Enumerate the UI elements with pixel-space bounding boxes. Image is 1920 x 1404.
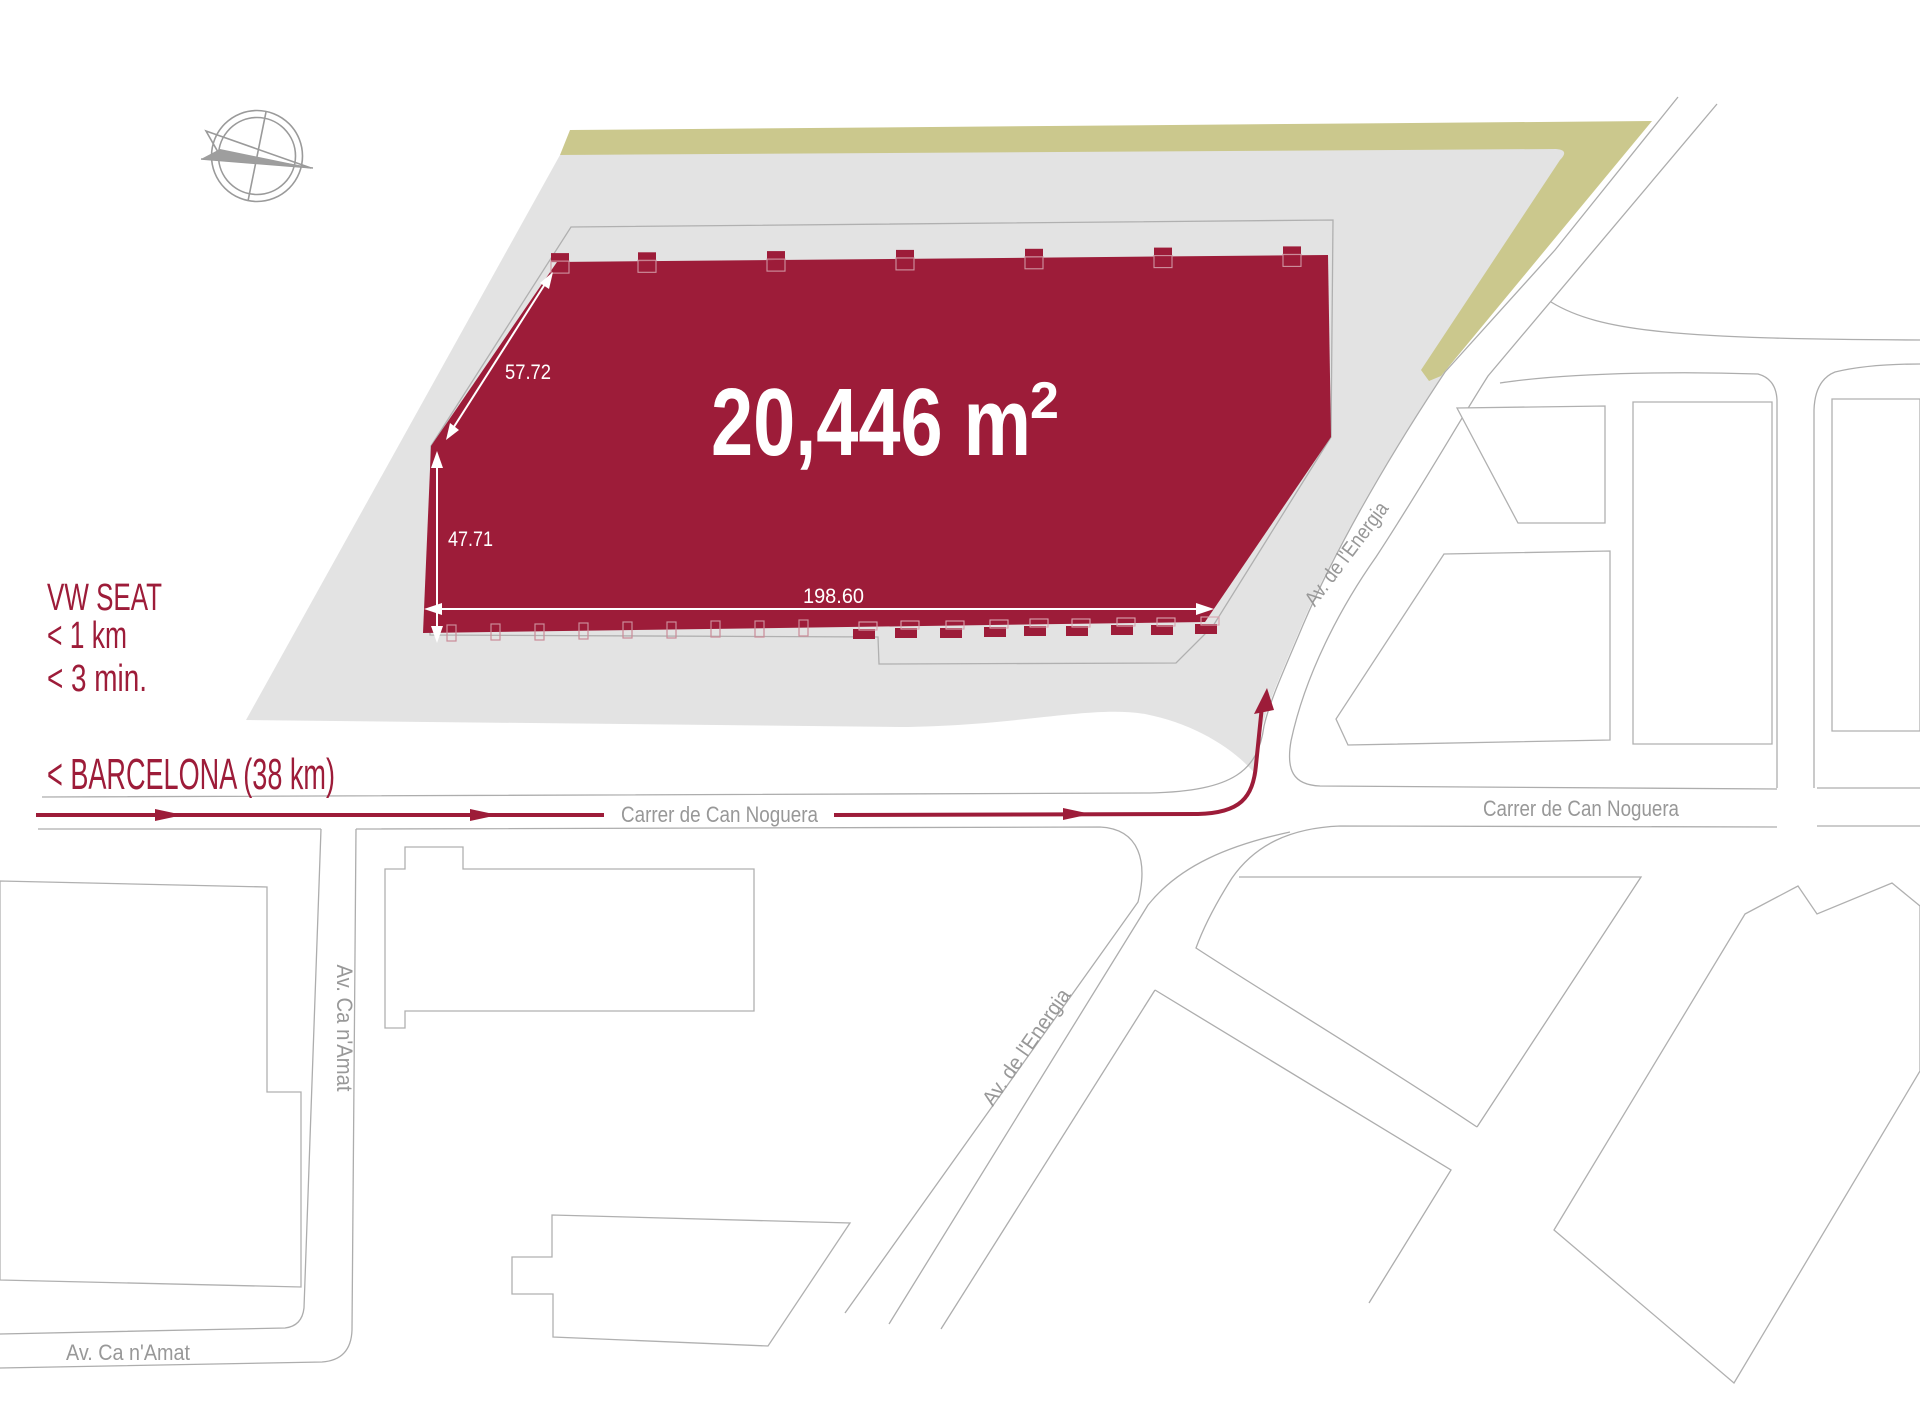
svg-text:Av. Ca n'Amat: Av. Ca n'Amat [66,1340,190,1365]
svg-text:20,446 m: 20,446 m [711,369,1031,476]
svg-text:2: 2 [1030,372,1059,430]
svg-text:Carrer de Can Noguera: Carrer de Can Noguera [1483,796,1680,821]
svg-text:57.72: 57.72 [505,361,551,384]
svg-text:VW SEAT: VW SEAT [47,577,162,619]
svg-text:47.71: 47.71 [448,528,493,551]
svg-text:Av. Ca n'Amat: Av. Ca n'Amat [332,965,357,1092]
svg-text:< 1 km: < 1 km [47,615,127,657]
svg-text:< 3 min.: < 3 min. [47,658,147,700]
svg-text:198.60: 198.60 [803,585,864,608]
svg-text:Carrer de Can Noguera: Carrer de Can Noguera [621,802,819,827]
svg-text:< BARCELONA (38 km): < BARCELONA (38 km) [47,750,335,799]
